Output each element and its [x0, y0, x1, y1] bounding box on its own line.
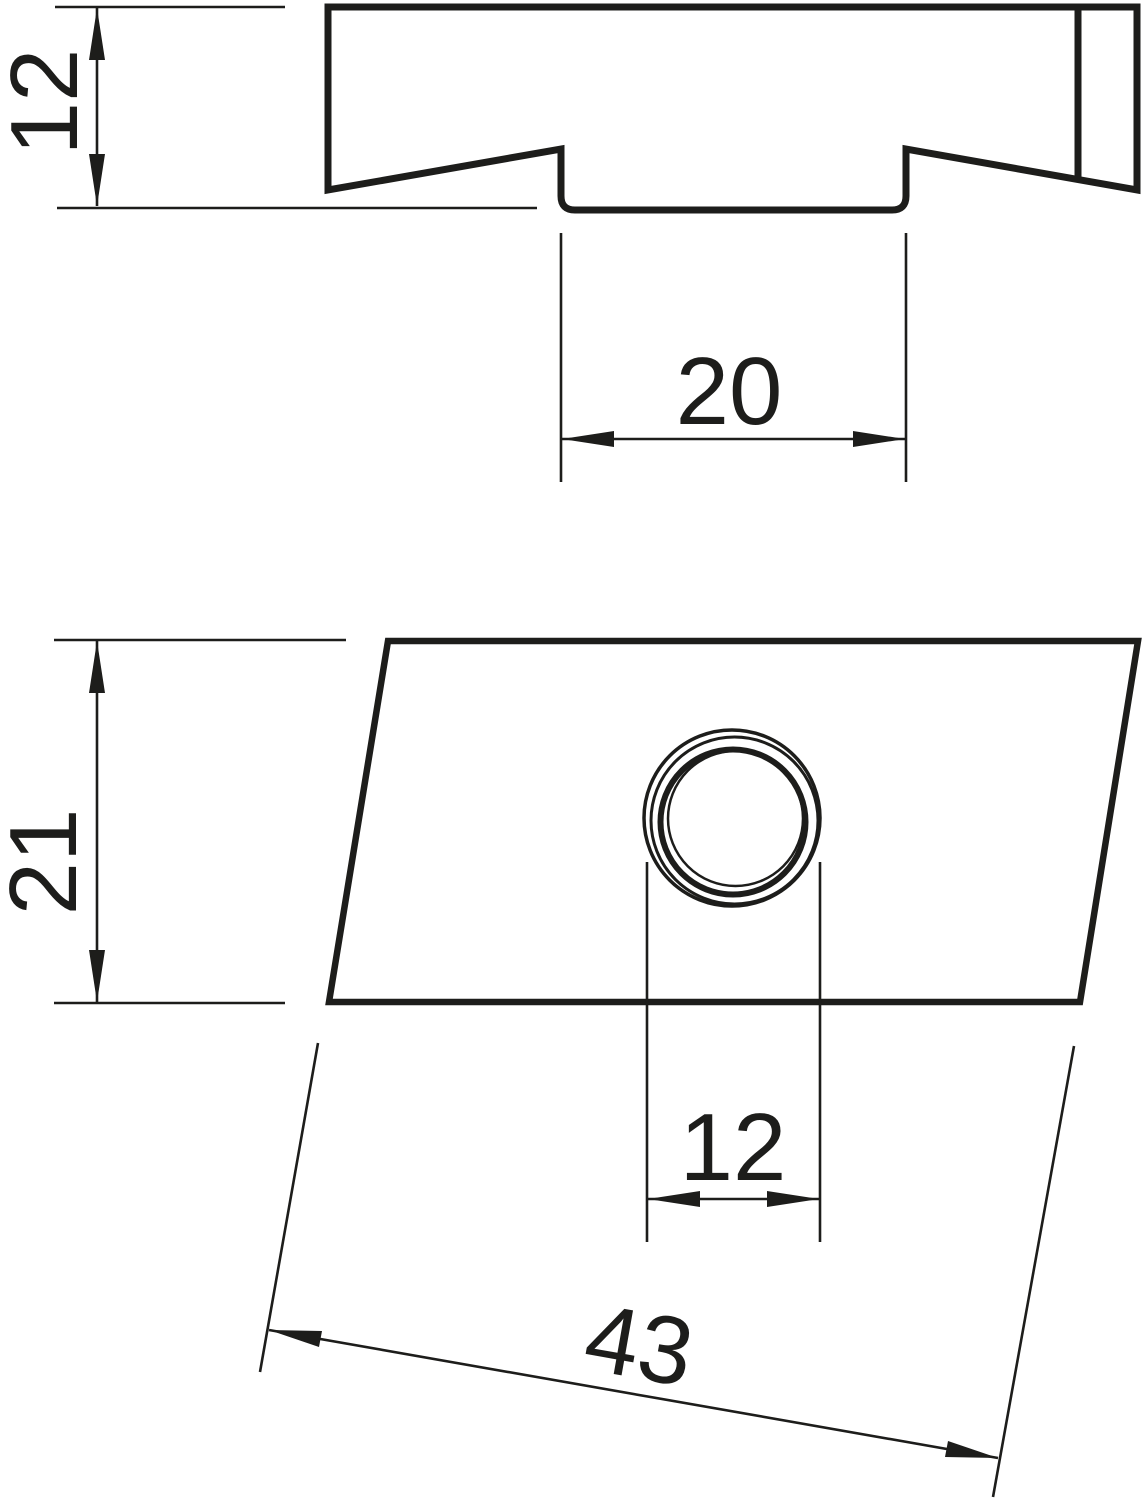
dim-label-depth: 21	[0, 809, 92, 916]
arrowhead-left	[269, 1330, 322, 1347]
arrowhead-down	[89, 950, 105, 1002]
technical-drawing-canvas: 12 20 21 12 43	[0, 0, 1145, 1500]
arrowhead-up	[89, 641, 105, 693]
arrowhead-right	[853, 431, 905, 447]
arrowhead-down	[89, 154, 105, 206]
plan-view-outline	[329, 641, 1138, 1002]
dim-label-length: 43	[578, 1289, 700, 1402]
dim-label-height: 12	[0, 49, 93, 156]
dimension-depth-21	[54, 640, 346, 1003]
dimension-length-43	[260, 1043, 1074, 1497]
extension-line	[260, 1043, 318, 1372]
dim-label-slot-width: 20	[676, 344, 783, 440]
drawing-svg	[0, 0, 1145, 1500]
arrowhead-right	[945, 1441, 998, 1458]
side-profile-view	[328, 7, 1137, 210]
extension-line	[993, 1046, 1074, 1497]
side-view-outline	[328, 7, 1137, 210]
arrowhead-left	[562, 431, 614, 447]
dim-label-hole-diameter: 12	[680, 1100, 787, 1196]
plan-view	[329, 641, 1138, 1002]
